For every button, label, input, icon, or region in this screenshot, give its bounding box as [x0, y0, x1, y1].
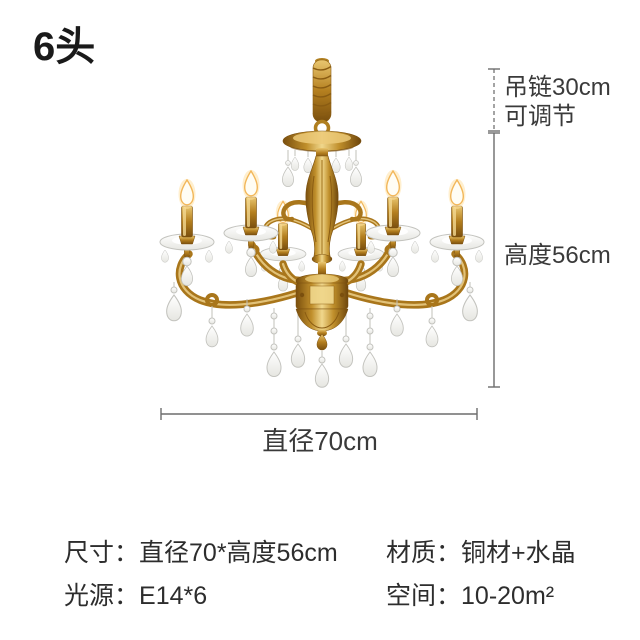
spec-light-source-label: 光源： — [64, 582, 139, 610]
chain — [313, 58, 331, 135]
spec-light-source: 光源：E14*6 — [64, 581, 338, 611]
chandelier-illustration — [0, 0, 640, 470]
spec-material-label: 材质： — [386, 539, 461, 567]
diameter-label: 直径70cm — [160, 427, 480, 455]
chain-dimension-line — [488, 69, 500, 131]
spec-material-value: 铜材+水晶 — [461, 539, 576, 567]
spec-size: 尺寸：直径70*高度56cm — [64, 538, 338, 568]
body — [296, 274, 348, 387]
chain-length-label: 吊链30cm — [504, 74, 611, 102]
diameter-dimension-line — [161, 408, 477, 420]
column — [306, 156, 338, 276]
spec-column-right: 材质：铜材+水晶 空间：10-20m² — [386, 538, 576, 624]
spec-space-label: 空间： — [386, 582, 461, 610]
height-label: 高度56cm — [504, 242, 611, 270]
spec-size-value: 直径70*高度56cm — [139, 539, 338, 567]
spec-size-label: 尺寸： — [64, 539, 139, 567]
spec-material: 材质：铜材+水晶 — [386, 538, 576, 568]
spec-space: 空间：10-20m² — [386, 581, 576, 611]
spec-light-source-value: E14*6 — [139, 582, 207, 610]
spec-column-left: 尺寸：直径70*高度56cm 光源：E14*6 — [64, 538, 338, 624]
spec-space-value: 10-20m² — [461, 582, 554, 610]
chain-adjustable-label: 可调节 — [504, 103, 576, 131]
product-dimension-card: 6头 — [0, 0, 640, 640]
height-dimension-line — [488, 133, 500, 387]
